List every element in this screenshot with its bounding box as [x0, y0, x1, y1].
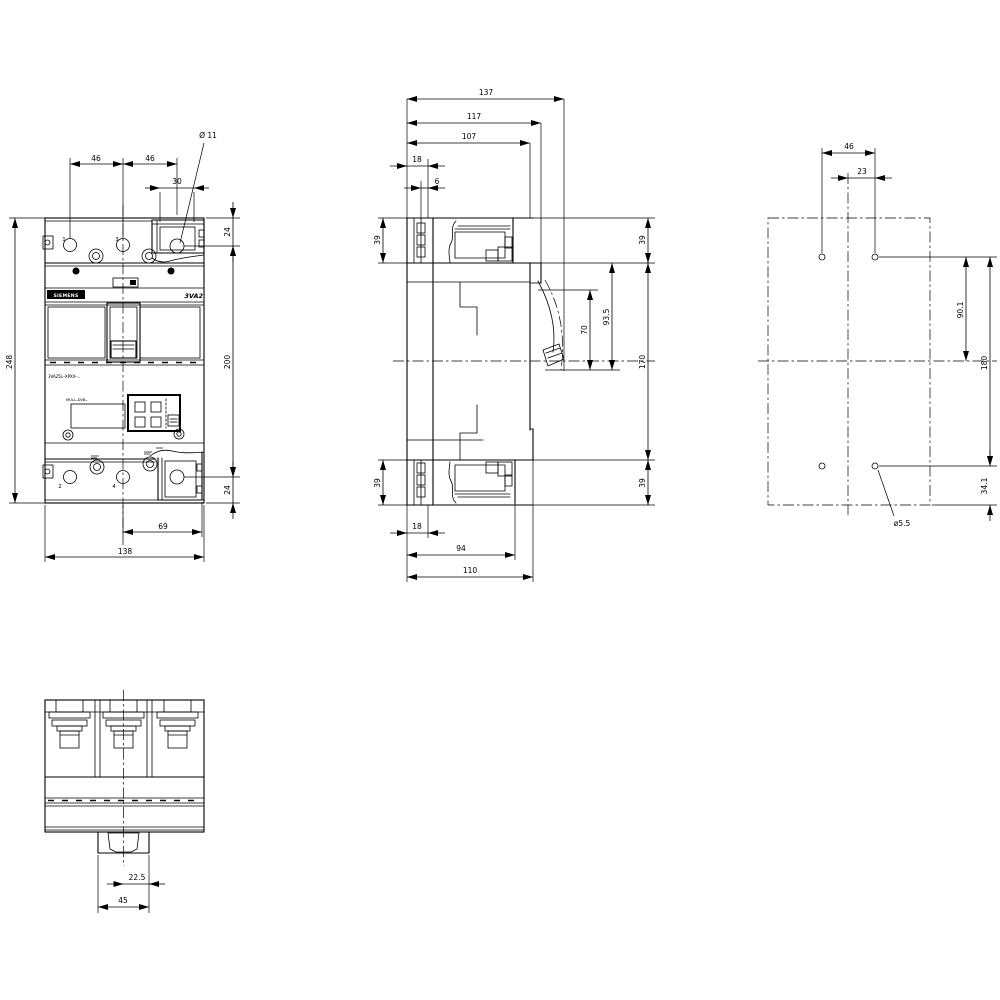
product-family-label: 3VA2: [184, 292, 203, 300]
dim-center-to-rail-edge: 22.5: [129, 873, 146, 882]
dim-pole-pitch-right: 46: [145, 154, 155, 163]
rail-plate-segments: [417, 223, 425, 497]
terminal-number-2: 2: [58, 484, 62, 490]
front-top-right-lug: [152, 220, 204, 262]
dim-center-to-hole: 23: [857, 167, 867, 176]
dim-lug-hole-dia: Ø 11: [199, 131, 217, 140]
side-top-terminal: [449, 221, 512, 262]
dim-handle-max: 93.5: [602, 308, 611, 325]
dim-hole-to-bottom: 34.1: [980, 477, 989, 494]
dim-handle-min: 70: [580, 325, 589, 335]
dim-39-bottom-left: 39: [373, 478, 382, 488]
dim-rail-slot-width: 45: [118, 896, 128, 905]
terminal-hole-2: [64, 471, 77, 484]
dim-center-to-right-lug: 69: [158, 522, 168, 531]
fixing-hole: [872, 463, 878, 469]
lug-hole: [170, 470, 184, 484]
toggle-handle: [111, 341, 136, 358]
front-view: 1 3 SIEMENS 3VA2: [5, 131, 240, 562]
writing-label: [71, 404, 125, 428]
dim-rear-18-top: 18: [412, 155, 422, 164]
lug-hole: [170, 239, 184, 253]
brand-label: SIEMENS: [53, 293, 78, 299]
dim-depth-110: 110: [463, 566, 478, 575]
terminal-number-1: 1: [62, 237, 66, 243]
terminal-number-3: 3: [115, 237, 119, 243]
terminal-number-4: 4: [112, 484, 116, 490]
dim-rear-18-bottom: 18: [412, 522, 422, 531]
dim-rear-6: 6: [435, 177, 440, 186]
drawing-canvas: 1 3 SIEMENS 3VA2: [0, 0, 1000, 1000]
bottom-view: 22.5 45: [45, 690, 204, 913]
bottom-dimensions: 22.5 45: [98, 855, 165, 913]
front-dimensions: 46 46 30 Ø 11 248 24 200: [5, 131, 240, 562]
side-bottom-terminal: [449, 462, 512, 503]
rear-drilling-view: 46 23 90.1 180 34.1 ø5.5: [758, 142, 997, 528]
dim-hole-to-centerline: 90.1: [956, 301, 965, 318]
dim-39-top-right: 39: [638, 235, 647, 245]
dim-depth-94: 94: [456, 544, 466, 553]
dim-cover-height: 170: [638, 355, 647, 370]
typecode-microtext: 3VA25L--XPXX--..: [48, 374, 80, 379]
dim-bottom-edge-to-hole: 24: [223, 485, 232, 495]
fixing-hole: [872, 254, 878, 260]
dim-hole-spacing-v: 200: [223, 355, 232, 370]
fixing-hole: [819, 463, 825, 469]
dim-overall-width: 138: [118, 547, 133, 556]
front-bottom-terminals: 2 4: [43, 448, 204, 500]
dim-overall-height: 248: [5, 355, 14, 370]
dim-hole-pitch-v: 180: [980, 356, 989, 371]
catalog-microtext: MULL.-DVB-..: [66, 397, 88, 402]
dim-overall-depth: 137: [479, 88, 494, 97]
breaker-outline-phantom: [768, 218, 930, 505]
side-view: 137 117 107 18 6 39 39 39 170 39: [373, 88, 655, 582]
dim-39-bottom-right: 39: [638, 478, 647, 488]
fixing-hole: [819, 254, 825, 260]
terminal-micro-labels: [91, 448, 163, 458]
dim-fixing-hole-dia: ø5.5: [894, 519, 911, 528]
dim-pole-pitch-left: 46: [91, 154, 101, 163]
dim-hole-pitch-h: 46: [844, 142, 854, 151]
front-bottom-right-lug: [150, 450, 204, 500]
toggle-handle-area: [45, 303, 204, 365]
dim-depth-107: 107: [462, 132, 477, 141]
dim-39-top-left: 39: [373, 235, 382, 245]
dim-depth-117: 117: [467, 112, 482, 121]
side-dimensions: 137 117 107 18 6 39 39 39 170 39: [373, 88, 648, 582]
rating-plate: [128, 395, 180, 431]
dimension-drawing-page: 1 3 SIEMENS 3VA2: [0, 0, 1000, 1000]
dim-lug-window: 30: [172, 177, 182, 186]
dim-top-edge-to-hole: 24: [223, 227, 232, 237]
